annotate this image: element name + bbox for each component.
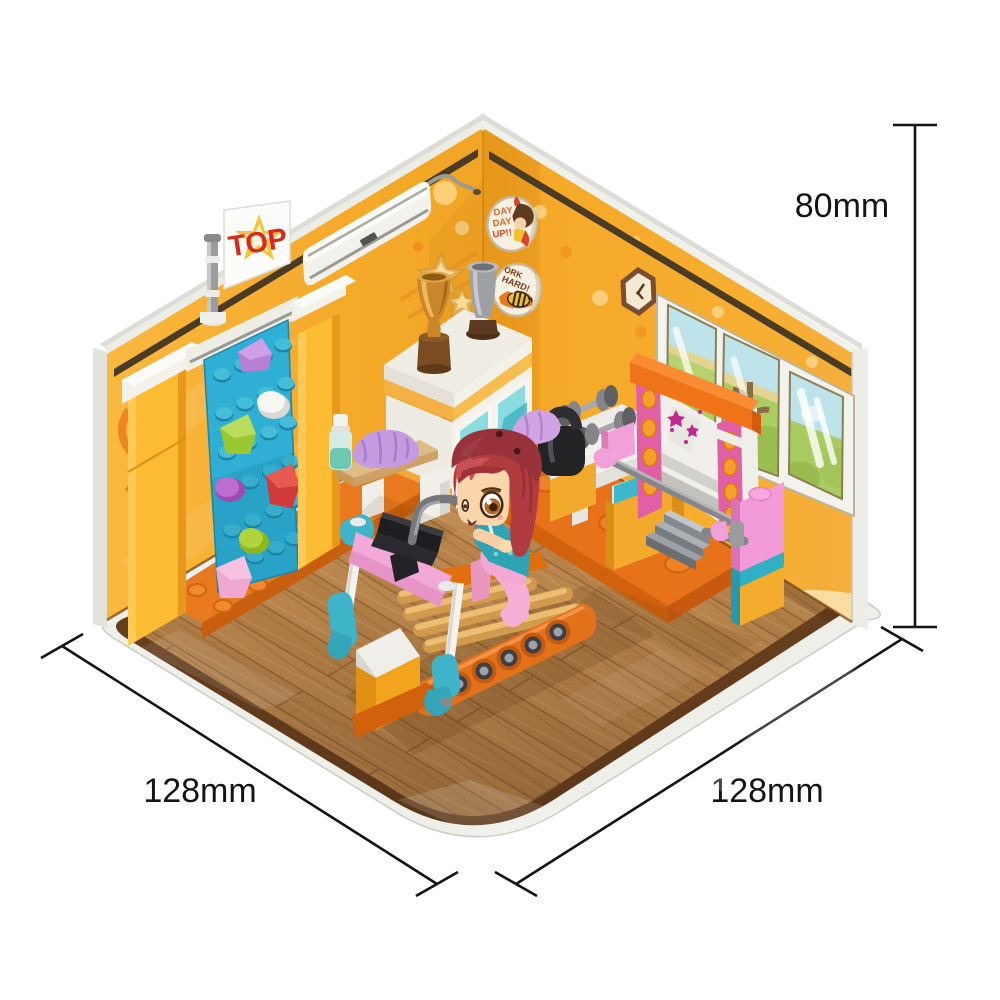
svg-text:80mm: 80mm (795, 187, 889, 225)
svg-text:128mm: 128mm (143, 772, 256, 810)
